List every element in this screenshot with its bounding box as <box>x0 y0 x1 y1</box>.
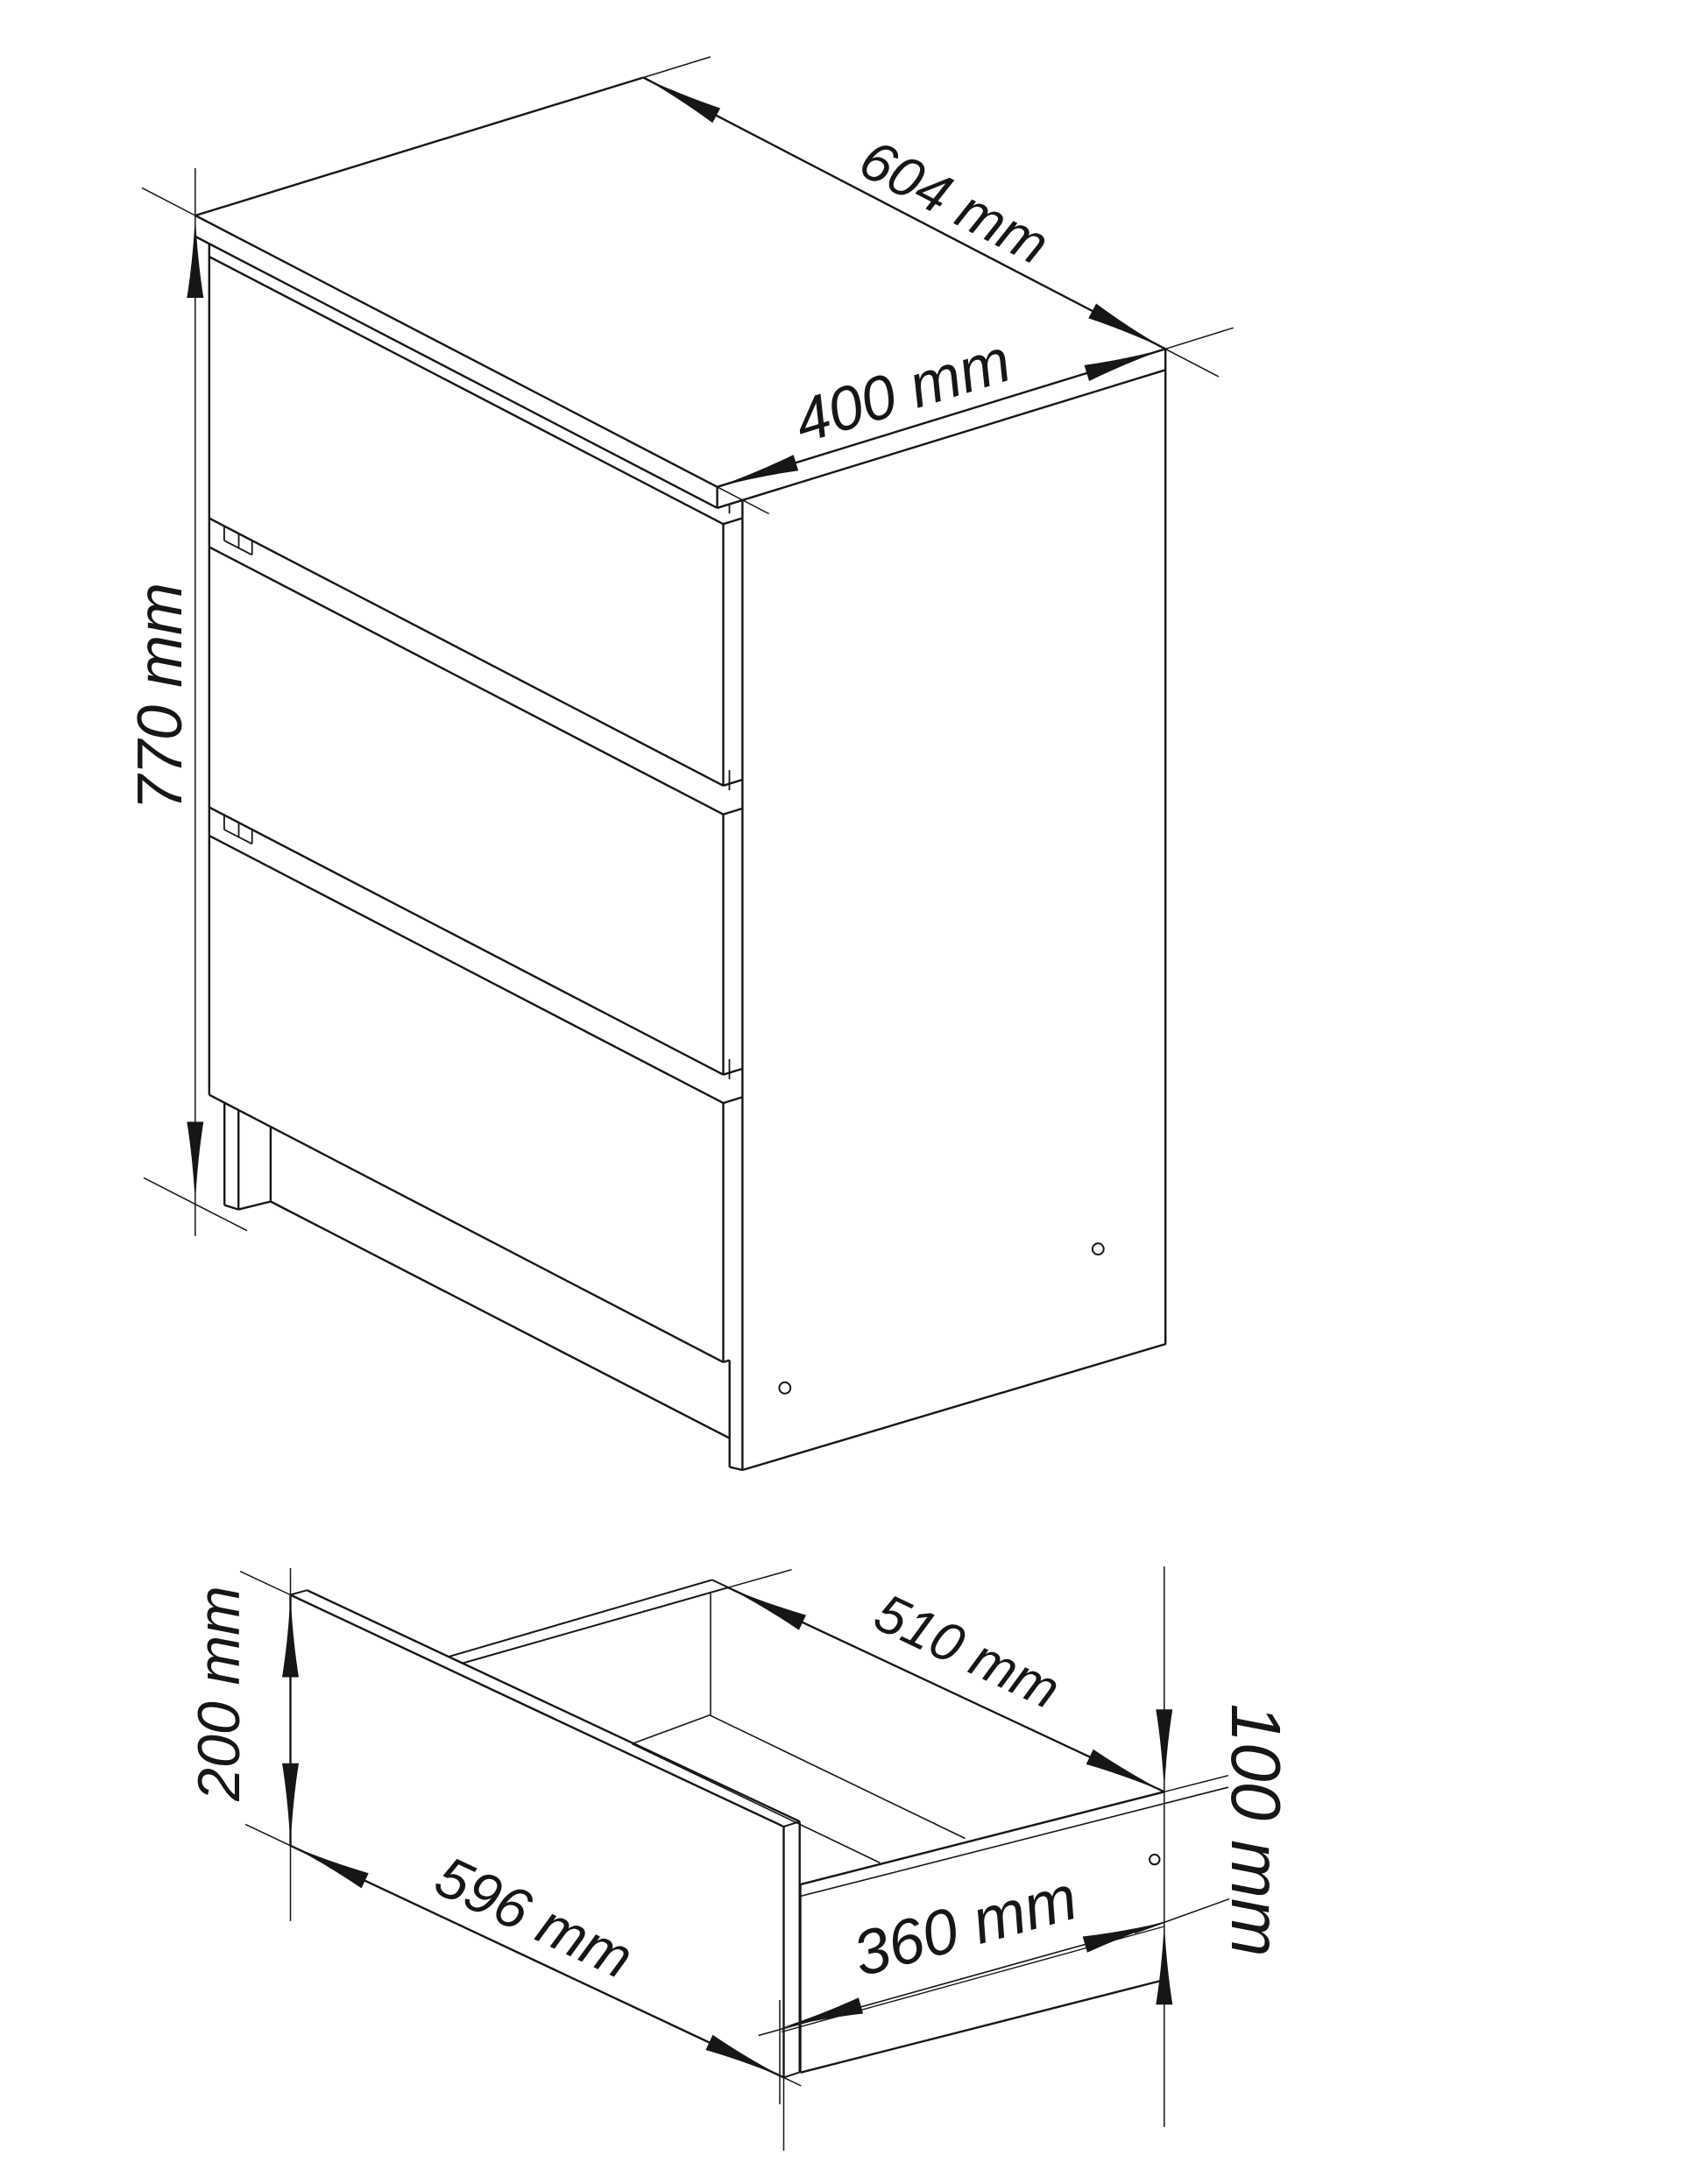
svg-text:200 mm: 200 mm <box>186 1586 252 1802</box>
svg-text:100 mm: 100 mm <box>1217 1704 1295 1957</box>
svg-text:770 mm: 770 mm <box>125 583 195 810</box>
